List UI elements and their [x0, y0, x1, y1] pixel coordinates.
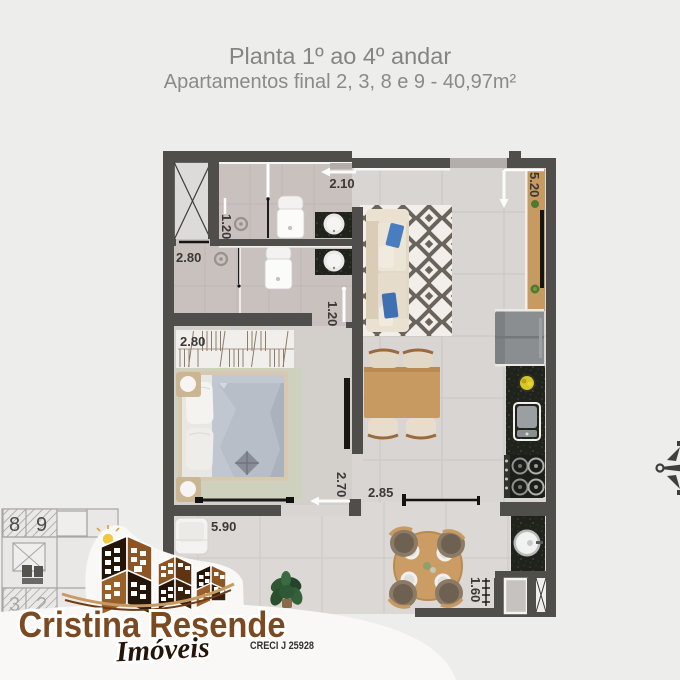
svg-text:5.90: 5.90 — [211, 519, 236, 534]
svg-text:2.85: 2.85 — [368, 485, 393, 500]
svg-text:2.80: 2.80 — [176, 250, 201, 265]
svg-text:1.60: 1.60 — [468, 577, 483, 602]
svg-text:Imóveis: Imóveis — [114, 632, 210, 669]
svg-text:Planta 1º ao 4º andar: Planta 1º ao 4º andar — [229, 43, 451, 69]
svg-text:2.80: 2.80 — [180, 334, 205, 349]
svg-text:5.20: 5.20 — [527, 172, 542, 197]
svg-text:1.20: 1.20 — [325, 301, 340, 326]
svg-text:9: 9 — [36, 514, 47, 536]
svg-text:2.70: 2.70 — [334, 472, 349, 497]
svg-text:CRECI J 25928: CRECI J 25928 — [250, 640, 314, 652]
svg-text:8: 8 — [9, 514, 20, 536]
svg-text:2.10: 2.10 — [329, 176, 354, 191]
svg-text:Apartamentos final 2, 3, 8 e 9: Apartamentos final 2, 3, 8 e 9 - 40,97m² — [164, 71, 517, 93]
svg-text:1.20: 1.20 — [219, 214, 234, 239]
